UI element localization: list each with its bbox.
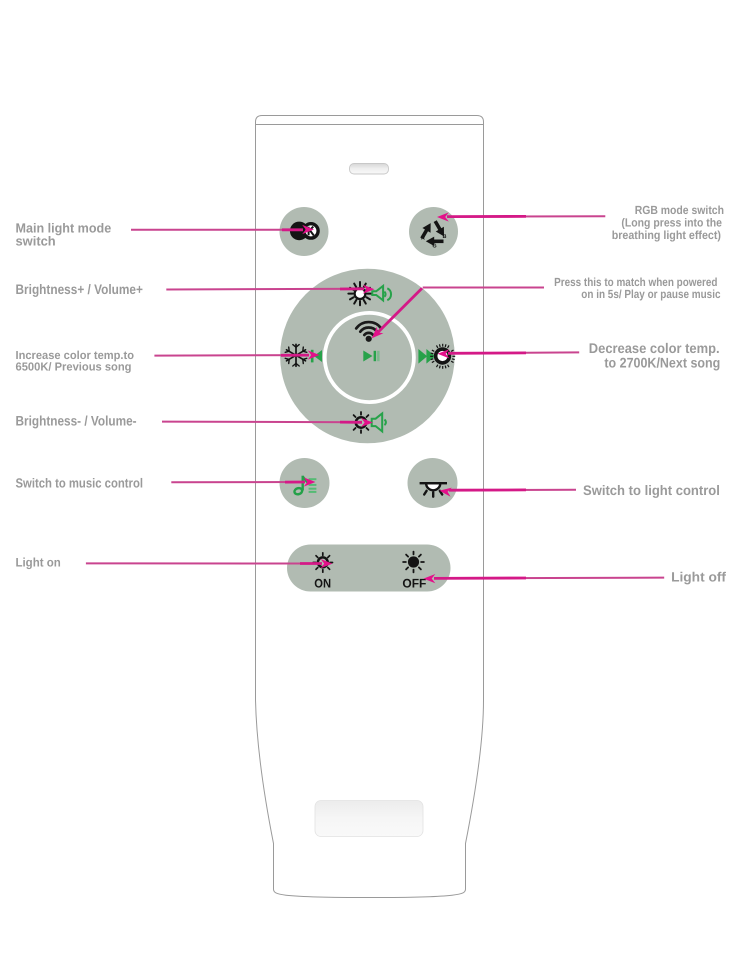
svg-text:R: R [421, 236, 425, 242]
svg-text:breathing light effect): breathing light effect) [612, 228, 721, 242]
svg-text:ON: ON [314, 577, 331, 591]
svg-text:on in 5s/ Play or pause music: on in 5s/ Play or pause music [581, 287, 721, 301]
svg-text:switch: switch [16, 234, 56, 249]
svg-text:G: G [432, 244, 436, 250]
svg-text:Light off: Light off [671, 570, 726, 585]
svg-text:Switch to light control: Switch to light control [583, 483, 720, 498]
svg-text:OFF: OFF [402, 577, 426, 591]
svg-text:B: B [443, 234, 447, 240]
svg-text:Brightness+ / Volume+: Brightness+ / Volume+ [16, 282, 143, 297]
svg-text:Switch to music control: Switch to music control [16, 475, 144, 490]
svg-text:to 2700K/Next song: to 2700K/Next song [604, 354, 720, 370]
svg-text:6500K/ Previous song: 6500K/ Previous song [16, 360, 132, 373]
svg-text:Brightness- / Volume-: Brightness- / Volume- [16, 414, 137, 429]
svg-text:Light on: Light on [16, 556, 61, 570]
